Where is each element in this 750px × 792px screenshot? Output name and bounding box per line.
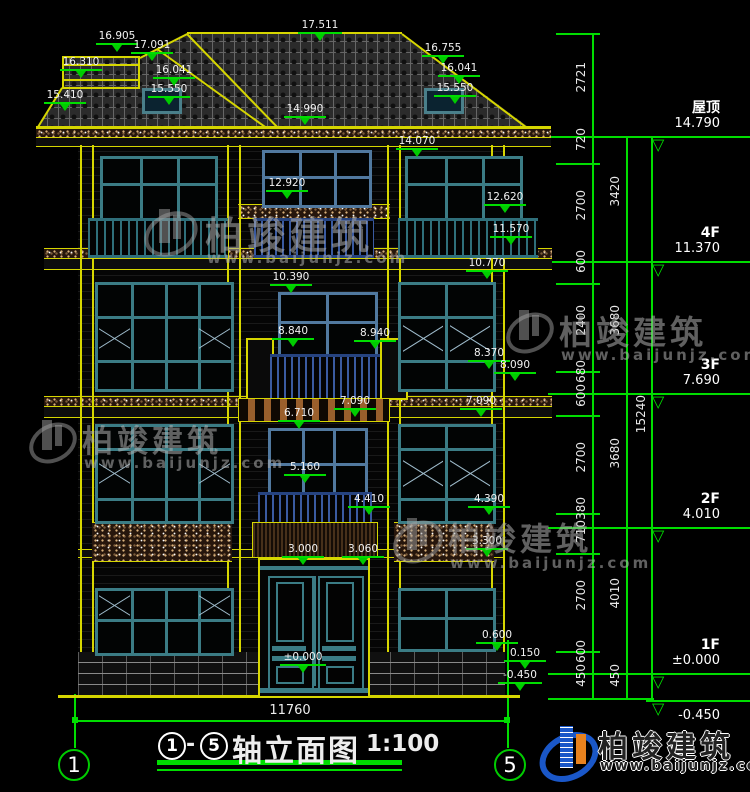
elevation-mark: 3.060 — [342, 544, 384, 565]
title-grid-start: 1 — [158, 732, 186, 760]
dim-value: 720 — [574, 128, 588, 151]
dim-value: 2700 — [574, 190, 588, 221]
elevation-mark: 10.390 — [270, 272, 312, 293]
level-triangle-icon: ▽ — [652, 701, 664, 716]
elevation-mark: 5.160 — [284, 462, 326, 483]
elevation-mark: 8.840 — [272, 326, 314, 347]
spandrel-left — [92, 522, 232, 562]
dim-ext — [548, 136, 654, 138]
dim-ext — [556, 415, 600, 417]
elevation-mark: 3.000 — [282, 544, 324, 565]
dim-chain-line-1 — [592, 33, 594, 698]
dim-ext — [556, 33, 600, 35]
elevation-mark: 12.620 — [484, 192, 526, 213]
elevation-mark: 4.410 — [348, 494, 390, 515]
window-4f-right — [405, 156, 523, 224]
grid-bubble-1: 1 — [58, 749, 90, 781]
dim-value: 3420 — [608, 176, 622, 207]
window-3f-right — [398, 282, 496, 392]
watermark-logo-icon — [22, 414, 84, 471]
elevation-mark: 8.940 — [354, 328, 396, 349]
level-triangle-icon: ▽ — [652, 137, 664, 152]
elevation-mark: 10.770 — [466, 258, 508, 279]
level-triangle-icon: ▽ — [652, 674, 664, 689]
window-3f-left — [95, 282, 234, 392]
elevation-mark: 0.150 — [504, 648, 546, 669]
elevation-mark: -0.450 — [498, 670, 542, 691]
dim-ext — [548, 673, 654, 675]
brand-logo-url: www.baijunjz.com — [600, 758, 750, 774]
dim-value: 600 — [574, 250, 588, 273]
elevation-mark: 11.570 — [490, 224, 532, 245]
dim-value: 2700 — [574, 442, 588, 473]
level-triangle-icon: ▽ — [652, 262, 664, 277]
wing-band-edge — [138, 57, 140, 88]
elevation-mark: 7.090 — [460, 396, 502, 417]
elevation-mark: 6.710 — [278, 408, 320, 429]
elevation-mark: 7.090 — [334, 396, 376, 417]
dim-value: 2721 — [574, 62, 588, 93]
elevation-mark: 16.310 — [60, 57, 102, 78]
elevation-mark: 4.390 — [468, 494, 510, 515]
dim-ext — [556, 163, 600, 165]
drawing-title: 轴立面图 — [232, 726, 360, 770]
dim-total-value: 15240 — [634, 395, 648, 433]
elevation-mark: 15.550 — [148, 84, 190, 105]
brand-logo: 柏竣建筑 www.baijunjz.com — [536, 720, 750, 788]
dim-value: 600 — [574, 640, 588, 663]
window-1f-left — [95, 588, 234, 656]
drawing-scale: 1:100 — [366, 731, 439, 757]
dim-value: 450 — [608, 664, 622, 687]
elevation-mark: 14.070 — [396, 136, 438, 157]
dim-chain-line-2 — [626, 136, 628, 698]
level-triangle-icon: ▽ — [652, 528, 664, 543]
dim-value: 4010 — [608, 578, 622, 609]
wing-band-line — [62, 79, 140, 81]
dim-value: 3680 — [608, 438, 622, 469]
title-dash: - — [186, 732, 195, 757]
elevation-mark: 16.041 — [438, 63, 480, 84]
elevation-drawing: 17.511 16.905 17.091 16.310 16.041 15.55… — [0, 0, 750, 792]
dim-chain-line-3 — [651, 136, 653, 700]
entry-door — [258, 558, 370, 698]
grid-bubble-5: 5 — [494, 749, 526, 781]
elevation-mark: 15.550 — [434, 83, 476, 104]
elevation-mark: 12.920 — [266, 178, 308, 199]
level-triangle-icon: ▽ — [652, 394, 664, 409]
elevation-mark-door-zero: ±0.000 — [280, 652, 326, 673]
dim-ext — [548, 261, 654, 263]
elevation-mark: 16.755 — [422, 43, 464, 64]
width-dim-line — [75, 720, 508, 722]
dim-value: 450 — [574, 664, 588, 687]
dim-ext — [556, 283, 600, 285]
title-grid-end: 5 — [200, 732, 228, 760]
elevation-mark: 17.091 — [131, 40, 173, 61]
elevation-mark: 17.511 — [298, 20, 342, 41]
elevation-mark: 15.410 — [44, 90, 86, 111]
dim-value: 600 — [574, 384, 588, 407]
dim-ext — [548, 698, 654, 700]
roof-ridge-line — [187, 32, 402, 34]
dim-value: 2700 — [574, 580, 588, 611]
eave-ledge — [36, 137, 551, 147]
door-threshold — [260, 688, 368, 693]
width-dim-value: 11760 — [250, 703, 330, 718]
elevation-mark: 8.090 — [494, 360, 536, 381]
elevation-mark: 14.990 — [284, 104, 326, 125]
